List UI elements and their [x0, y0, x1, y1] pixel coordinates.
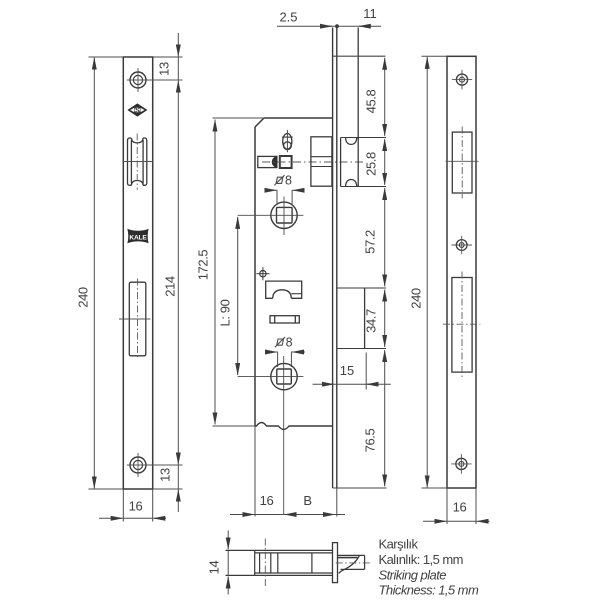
svg-text:Kalınlık: 1,5 mm: Kalınlık: 1,5 mm [379, 552, 463, 567]
svg-text:76.5: 76.5 [363, 428, 378, 452]
svg-text:8: 8 [286, 335, 293, 349]
svg-text:25.8: 25.8 [363, 152, 378, 176]
svg-text:B: B [303, 493, 311, 508]
svg-text:34.7: 34.7 [363, 309, 378, 333]
svg-text:16: 16 [260, 493, 274, 508]
svg-text:S: S [135, 107, 140, 114]
svg-text:45.8: 45.8 [363, 89, 378, 113]
svg-text:Karşılık: Karşılık [379, 537, 419, 552]
svg-text:L: 90: L: 90 [218, 299, 233, 326]
svg-text:15: 15 [340, 363, 354, 378]
svg-text:240: 240 [409, 288, 424, 309]
svg-text:KALE: KALE [129, 234, 147, 241]
svg-text:240: 240 [76, 287, 91, 308]
svg-text:Thickness: 1,5 mm: Thickness: 1,5 mm [379, 583, 479, 598]
svg-text:Striking plate: Striking plate [379, 568, 447, 583]
svg-text:2.5: 2.5 [279, 10, 297, 25]
svg-text:16: 16 [453, 500, 467, 515]
svg-text:16: 16 [129, 499, 143, 514]
svg-text:13: 13 [157, 62, 172, 76]
svg-text:13: 13 [158, 468, 173, 482]
svg-text:172.5: 172.5 [196, 250, 211, 281]
svg-text:11: 11 [363, 6, 377, 21]
svg-text:14: 14 [206, 561, 221, 575]
svg-text:57.2: 57.2 [363, 230, 378, 254]
svg-text:8: 8 [285, 174, 292, 188]
svg-text:214: 214 [163, 276, 178, 297]
